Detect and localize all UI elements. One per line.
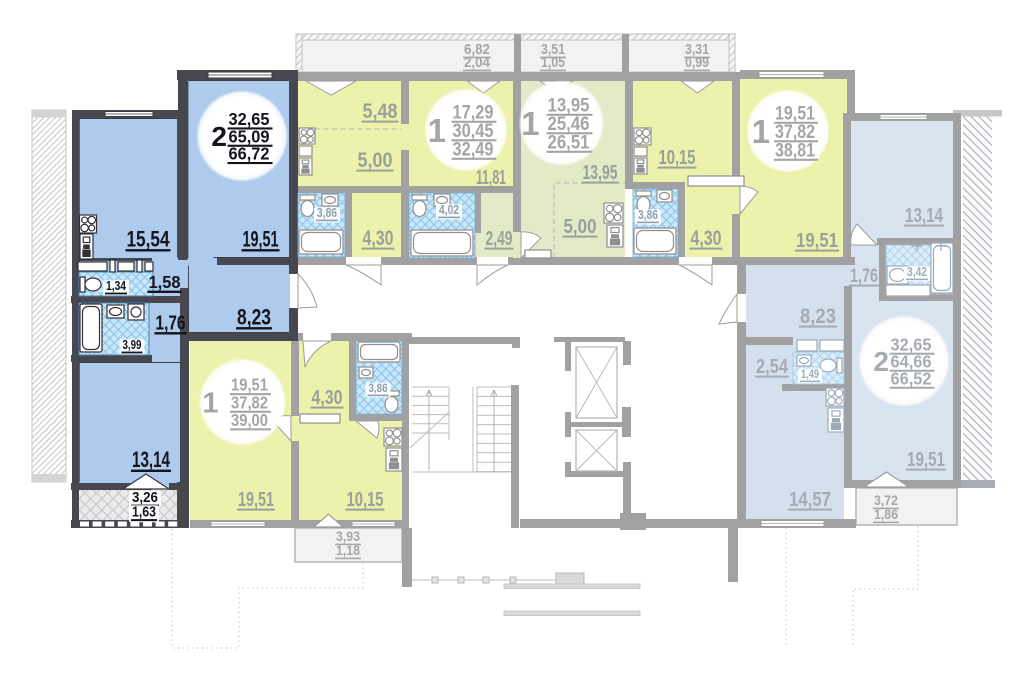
svg-text:1: 1 xyxy=(428,112,446,149)
svg-text:1: 1 xyxy=(202,387,218,419)
svg-text:14,57: 14,57 xyxy=(789,489,831,511)
svg-text:1,34: 1,34 xyxy=(106,279,126,293)
svg-text:2,49: 2,49 xyxy=(486,228,513,250)
svg-text:3,99: 3,99 xyxy=(123,338,142,352)
svg-text:11,81: 11,81 xyxy=(476,167,506,189)
svg-text:19,51: 19,51 xyxy=(243,227,279,252)
svg-text:3,86: 3,86 xyxy=(638,208,658,222)
svg-text:19,51: 19,51 xyxy=(796,230,838,252)
svg-text:1,49: 1,49 xyxy=(801,367,819,381)
svg-text:66,52: 66,52 xyxy=(891,368,932,388)
svg-text:13,14: 13,14 xyxy=(132,447,171,472)
svg-text:32,49: 32,49 xyxy=(453,139,494,160)
svg-text:1,76: 1,76 xyxy=(850,266,878,287)
svg-text:10,15: 10,15 xyxy=(347,489,384,511)
svg-text:1,05: 1,05 xyxy=(541,55,565,71)
svg-text:8,23: 8,23 xyxy=(800,305,836,328)
svg-text:39,00: 39,00 xyxy=(231,410,268,430)
svg-text:38,81: 38,81 xyxy=(775,140,815,161)
svg-text:1,18: 1,18 xyxy=(336,542,360,558)
svg-text:5,00: 5,00 xyxy=(564,216,597,238)
svg-text:19,51: 19,51 xyxy=(238,489,274,511)
svg-text:4,02: 4,02 xyxy=(439,203,459,217)
svg-text:26,51: 26,51 xyxy=(548,132,590,153)
svg-text:1: 1 xyxy=(752,113,770,150)
svg-text:3,86: 3,86 xyxy=(317,206,337,220)
svg-text:1,76: 1,76 xyxy=(156,312,186,335)
svg-text:19,51: 19,51 xyxy=(907,449,945,471)
svg-text:0,99: 0,99 xyxy=(685,55,709,71)
svg-text:1: 1 xyxy=(521,105,539,142)
svg-text:8,23: 8,23 xyxy=(237,305,271,330)
svg-text:1,58: 1,58 xyxy=(149,272,181,292)
svg-text:5,00: 5,00 xyxy=(358,149,393,172)
svg-text:1,86: 1,86 xyxy=(874,506,898,522)
svg-text:4,30: 4,30 xyxy=(691,227,722,250)
svg-text:4,30: 4,30 xyxy=(363,227,394,250)
svg-text:2: 2 xyxy=(873,346,889,377)
svg-text:2,04: 2,04 xyxy=(464,55,490,71)
svg-text:3,42: 3,42 xyxy=(907,265,927,279)
svg-text:13,14: 13,14 xyxy=(905,205,944,227)
svg-text:4,30: 4,30 xyxy=(312,387,343,409)
svg-text:3,86: 3,86 xyxy=(369,381,388,395)
svg-text:5,48: 5,48 xyxy=(363,100,398,123)
svg-text:66,72: 66,72 xyxy=(229,144,270,164)
svg-text:13,95: 13,95 xyxy=(583,162,618,184)
svg-text:10,15: 10,15 xyxy=(659,147,696,169)
svg-text:15,54: 15,54 xyxy=(127,227,171,252)
svg-text:1,63: 1,63 xyxy=(132,505,156,521)
svg-text:2,54: 2,54 xyxy=(756,356,789,378)
svg-text:2: 2 xyxy=(211,121,227,152)
